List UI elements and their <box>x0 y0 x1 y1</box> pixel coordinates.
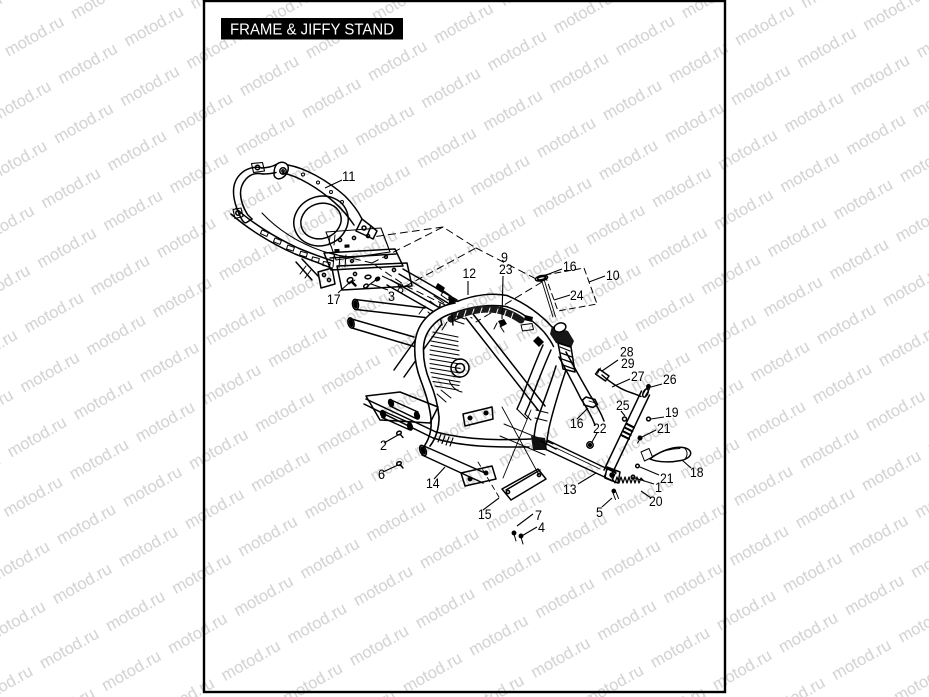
svg-text:2: 2 <box>380 438 387 453</box>
svg-text:FRAME & JIFFY STAND: FRAME & JIFFY STAND <box>230 22 394 39</box>
svg-text:21: 21 <box>657 421 671 436</box>
svg-text:14: 14 <box>426 476 440 491</box>
svg-text:22: 22 <box>593 421 607 436</box>
svg-text:11: 11 <box>342 169 356 184</box>
svg-text:20: 20 <box>649 494 663 509</box>
svg-text:25: 25 <box>616 398 630 413</box>
svg-text:16: 16 <box>563 259 577 274</box>
svg-text:5: 5 <box>596 505 603 520</box>
svg-text:17: 17 <box>327 292 341 307</box>
svg-text:26: 26 <box>663 372 677 387</box>
svg-text:15: 15 <box>478 507 492 522</box>
svg-text:18: 18 <box>690 465 704 480</box>
svg-text:27: 27 <box>631 369 645 384</box>
svg-text:24: 24 <box>570 288 584 303</box>
svg-text:6: 6 <box>378 467 385 482</box>
svg-text:12: 12 <box>463 266 477 281</box>
svg-text:3: 3 <box>388 289 395 304</box>
svg-text:4: 4 <box>538 520 545 535</box>
svg-text:13: 13 <box>563 482 577 497</box>
svg-text:10: 10 <box>606 268 620 283</box>
svg-text:8: 8 <box>397 281 404 296</box>
svg-text:23: 23 <box>499 262 513 277</box>
svg-text:21: 21 <box>660 471 674 486</box>
svg-text:16: 16 <box>570 416 584 431</box>
svg-text:19: 19 <box>665 405 679 420</box>
